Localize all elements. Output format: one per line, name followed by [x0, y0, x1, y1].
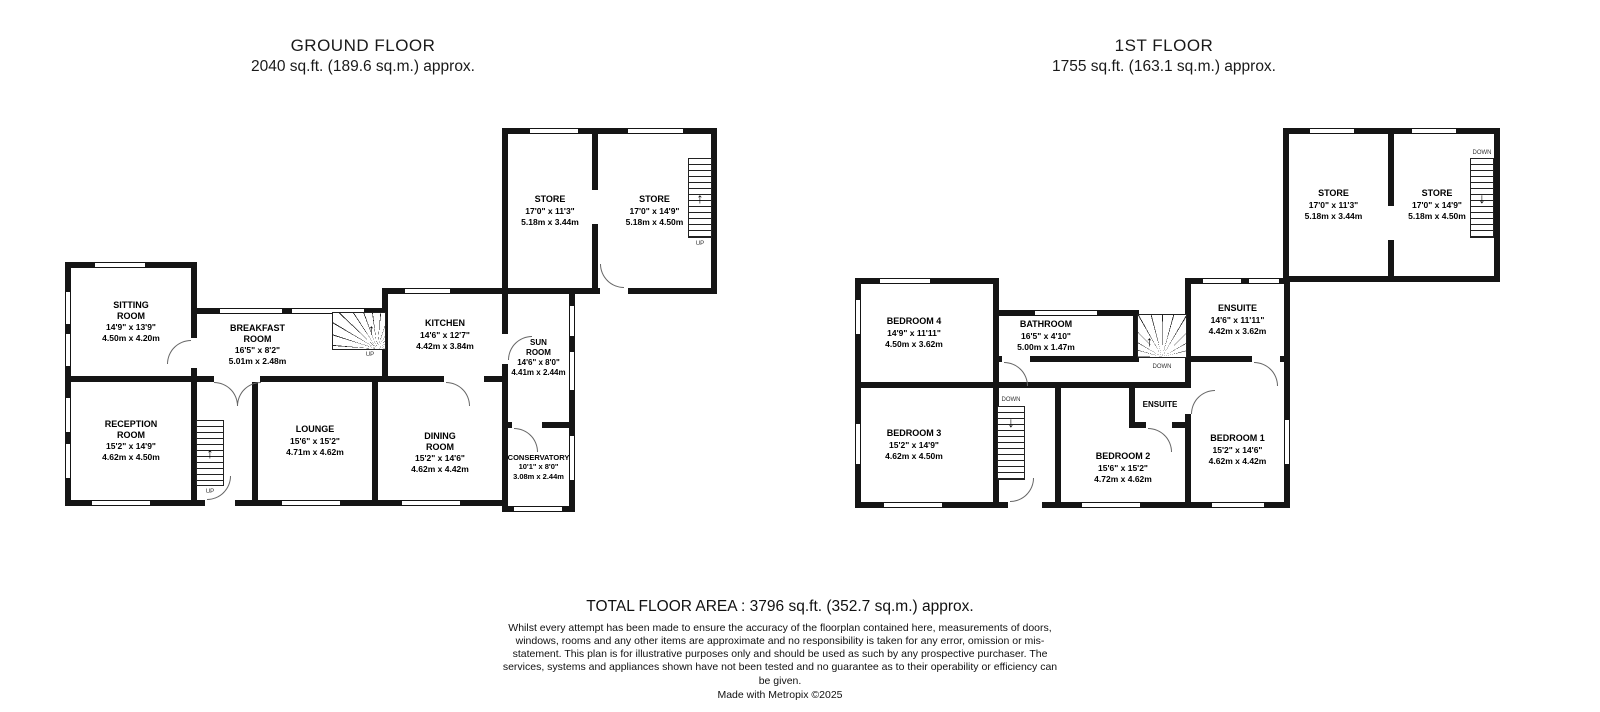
- window-marker: [92, 500, 150, 506]
- room-label: KITCHEN 14'6" x 12'7" 4.42m x 3.84m: [416, 318, 474, 351]
- room-bedroom-3: BEDROOM 3 15'2" x 14'9" 4.62m x 4.50m: [855, 382, 999, 508]
- floorplan-page: GROUND FLOOR 2040 sq.ft. (189.6 sq.m.) a…: [0, 0, 1600, 712]
- window-marker: [1284, 420, 1290, 464]
- up-arrow-icon: ↑: [207, 446, 214, 460]
- room-dims-m: 5.00m x 1.47m: [1017, 342, 1075, 353]
- window-marker: [1310, 128, 1354, 134]
- door-opening: [191, 338, 197, 368]
- floor-area-text: 2040 sq.ft. (189.6 sq.m.) approx.: [103, 58, 623, 76]
- window-marker: [569, 352, 575, 390]
- room-dims-ft: 17'0" x 14'9": [626, 206, 684, 217]
- window-marker: [1249, 278, 1279, 284]
- door-opening: [600, 288, 628, 294]
- room-dims-ft: 17'0" x 14'9": [1408, 200, 1466, 211]
- room-label: ENSUITE 14'6" x 11'11" 4.42m x 3.62m: [1209, 303, 1267, 336]
- window-marker: [1082, 502, 1140, 508]
- room-dims-ft: 17'0" x 11'3": [521, 206, 579, 217]
- window-marker: [282, 500, 340, 506]
- room-name: BREAKFAST ROOM: [229, 323, 287, 346]
- door-opening: [1252, 356, 1280, 362]
- door-opening: [1185, 388, 1191, 414]
- room-dims-ft: 14'9" x 13'9": [102, 322, 160, 333]
- window-marker: [220, 308, 282, 314]
- room-label: STORE 17'0" x 11'3" 5.18m x 3.44m: [521, 194, 579, 227]
- room-dims-ft: 14'6" x 12'7": [416, 330, 474, 341]
- room-dims-m: 5.01m x 2.48m: [229, 356, 287, 367]
- room-bathroom: BATHROOM 16'5" x 4'10" 5.00m x 1.47m: [993, 310, 1139, 362]
- window-marker: [628, 128, 683, 134]
- room-name: DINING ROOM: [411, 431, 469, 454]
- room-label: ENSUITE: [1143, 400, 1178, 410]
- room-dims-ft: 15'6" x 15'2": [1094, 463, 1152, 474]
- staircase-winder-ff: [1137, 314, 1187, 358]
- room-dims-ft: 17'0" x 11'3": [1305, 200, 1363, 211]
- floor-title-text: 1ST FLOOR: [904, 36, 1424, 56]
- room-dims-m: 4.72m x 4.62m: [1094, 474, 1152, 485]
- room-dims-m: 5.18m x 3.44m: [521, 217, 579, 228]
- window-marker: [884, 502, 942, 508]
- room-label: BATHROOM 16'5" x 4'10" 5.00m x 1.47m: [1017, 319, 1115, 352]
- up-arrow-icon: ↑: [1146, 334, 1153, 348]
- room-dims-ft: 15'6" x 15'2": [286, 436, 344, 447]
- window-marker: [402, 500, 460, 506]
- door-opening: [592, 190, 598, 224]
- room-name: CONSERVATORY: [508, 453, 570, 462]
- room-lounge: LOUNGE 15'6" x 15'2" 4.71m x 4.62m: [252, 376, 378, 506]
- room-dims-m: 5.18m x 3.44m: [1305, 211, 1363, 222]
- room-name: BEDROOM 2: [1094, 451, 1152, 462]
- window-marker: [65, 398, 71, 432]
- stair-direction-label: DOWN: [1458, 150, 1506, 156]
- room-name: STORE: [1408, 188, 1466, 199]
- room-dims-ft: 15'2" x 14'9": [885, 440, 943, 451]
- room-dims-m: 4.62m x 4.50m: [102, 452, 160, 463]
- stair-direction-label: DOWN: [987, 397, 1035, 403]
- window-marker: [405, 288, 450, 294]
- room-dims-ft: 14'9" x 11'11": [885, 328, 943, 339]
- room-name: BEDROOM 3: [885, 428, 943, 439]
- room-dims-m: 4.42m x 3.62m: [1209, 326, 1267, 337]
- room-dims-ft: 15'2" x 14'6": [411, 453, 469, 464]
- room-label: RECEPTION ROOM 15'2" x 14'9" 4.62m x 4.5…: [102, 419, 160, 464]
- door-opening: [1388, 206, 1394, 240]
- room-label: BEDROOM 3 15'2" x 14'9" 4.62m x 4.50m: [885, 428, 969, 461]
- staircase-store-gf: ↑: [688, 158, 712, 238]
- room-name: SITTING ROOM: [102, 300, 160, 323]
- room-dims-m: 4.62m x 4.50m: [885, 451, 943, 462]
- room-dims-m: 4.62m x 4.42m: [411, 464, 469, 475]
- room-dims-ft: 14'6" x 11'11": [1209, 315, 1267, 326]
- disclaimer-text: Whilst every attempt has been made to en…: [500, 622, 1060, 688]
- room-label: SITTING ROOM 14'9" x 13'9" 4.50m x 4.20m: [102, 300, 160, 345]
- door-opening: [512, 422, 542, 428]
- metropix-credit: Made with Metropix ©2025: [400, 689, 1160, 701]
- total-floor-area: TOTAL FLOOR AREA : 3796 sq.ft. (352.7 sq…: [400, 598, 1160, 616]
- room-dims-m: 5.18m x 4.50m: [1408, 211, 1466, 222]
- window-marker: [855, 300, 861, 334]
- door-opening: [1008, 502, 1042, 508]
- room-dims-ft: 16'5" x 4'10": [1017, 331, 1075, 342]
- room-label: STORE 17'0" x 11'3" 5.18m x 3.44m: [1305, 188, 1373, 221]
- room-name: ENSUITE: [1209, 303, 1267, 314]
- room-dims-ft: 15'2" x 14'9": [102, 441, 160, 452]
- room-dims-ft: 16'5" x 8'2": [229, 345, 287, 356]
- window-marker: [880, 278, 930, 284]
- window-marker: [1035, 310, 1097, 316]
- staircase-winder-gf: [332, 312, 386, 350]
- room-dims-ft: 15'2" x 14'6": [1209, 445, 1267, 456]
- stair-direction-label: UP: [358, 352, 382, 358]
- room-name: BATHROOM: [1017, 319, 1075, 330]
- window-marker: [569, 306, 575, 336]
- window-marker: [1412, 128, 1456, 134]
- room-dims-m: 5.18m x 4.50m: [626, 217, 684, 228]
- ground-floor-title: GROUND FLOOR 2040 sq.ft. (189.6 sq.m.) a…: [103, 36, 623, 76]
- window-marker: [1212, 502, 1264, 508]
- room-store-1-ff: STORE 17'0" x 11'3" 5.18m x 3.44m: [1283, 128, 1394, 282]
- room-dims-m: 4.41m x 2.44m: [511, 368, 565, 378]
- room-name: STORE: [1305, 188, 1363, 199]
- window-marker: [514, 506, 562, 512]
- room-sitting-room: SITTING ROOM 14'9" x 13'9" 4.50m x 4.20m: [65, 262, 197, 382]
- window-marker: [855, 424, 861, 464]
- room-dims-m: 4.50m x 4.20m: [102, 333, 160, 344]
- room-dims-ft: 10'1" x 8'0": [508, 462, 570, 472]
- room-dining-room: DINING ROOM 15'2" x 14'6" 4.62m x 4.42m: [372, 376, 508, 506]
- room-name: STORE: [626, 194, 684, 205]
- first-floor-title: 1ST FLOOR 1755 sq.ft. (163.1 sq.m.) appr…: [904, 36, 1424, 76]
- room-kitchen: KITCHEN 14'6" x 12'7" 4.42m x 3.84m: [382, 288, 508, 382]
- stair-direction-label: DOWN: [1137, 364, 1187, 370]
- room-label: STORE 17'0" x 14'9" 5.18m x 4.50m: [626, 194, 684, 227]
- room-ensuite-main: ENSUITE 14'6" x 11'11" 4.42m x 3.62m: [1185, 278, 1290, 362]
- up-arrow-icon: ↑: [697, 191, 704, 205]
- stair-direction-label: UP: [196, 489, 224, 495]
- room-label: DINING ROOM 15'2" x 14'6" 4.62m x 4.42m: [411, 431, 469, 476]
- room-bedroom-4: BEDROOM 4 14'9" x 11'11" 4.50m x 3.62m: [855, 278, 999, 388]
- footer: TOTAL FLOOR AREA : 3796 sq.ft. (352.7 sq…: [400, 598, 1160, 701]
- door-opening: [205, 500, 235, 506]
- stair-direction-label: UP: [688, 241, 712, 247]
- room-name: BEDROOM 1: [1209, 433, 1267, 444]
- room-dims-m: 3.08m x 2.44m: [508, 472, 570, 482]
- room-dims-m: 4.71m x 4.62m: [286, 447, 344, 458]
- up-arrow-icon: ↑: [368, 322, 375, 336]
- room-label: BEDROOM 4 14'9" x 11'11" 4.50m x 3.62m: [885, 316, 969, 349]
- room-store-1-gf: STORE 17'0" x 11'3" 5.18m x 3.44m: [502, 128, 598, 294]
- floor-area-text: 1755 sq.ft. (163.1 sq.m.) approx.: [904, 58, 1424, 76]
- staircase-store-ff: ↓: [1470, 158, 1494, 238]
- room-reception-room: RECEPTION ROOM 15'2" x 14'9" 4.62m x 4.5…: [65, 376, 197, 506]
- window-marker: [65, 444, 71, 478]
- window-marker: [530, 128, 578, 134]
- door-opening: [444, 376, 484, 382]
- room-label: BEDROOM 2 15'6" x 15'2" 4.72m x 4.62m: [1094, 451, 1152, 484]
- staircase-hall-ff: ↓: [997, 406, 1025, 480]
- room-label: LOUNGE 15'6" x 15'2" 4.71m x 4.62m: [286, 424, 344, 457]
- window-marker: [65, 292, 71, 324]
- room-name: ENSUITE: [1143, 400, 1178, 410]
- down-arrow-icon: ↓: [1008, 415, 1015, 429]
- room-name: LOUNGE: [286, 424, 344, 435]
- window-marker: [569, 436, 575, 480]
- room-dims-m: 4.42m x 3.84m: [416, 341, 474, 352]
- room-label: CONSERVATORY 10'1" x 8'0" 3.08m x 2.44m: [508, 453, 570, 482]
- window-marker: [1203, 278, 1241, 284]
- window-marker: [95, 262, 145, 268]
- door-swing: [1004, 362, 1028, 386]
- room-name: KITCHEN: [416, 318, 474, 329]
- staircase-hall-gf: ↑: [196, 420, 224, 486]
- door-opening: [1002, 356, 1030, 362]
- room-name: BEDROOM 4: [885, 316, 943, 327]
- room-dims-m: 4.50m x 3.62m: [885, 339, 943, 350]
- room-label: BEDROOM 1 15'2" x 14'6" 4.62m x 4.42m: [1209, 433, 1267, 466]
- room-name: STORE: [521, 194, 579, 205]
- room-conservatory: CONSERVATORY 10'1" x 8'0" 3.08m x 2.44m: [502, 422, 575, 512]
- door-opening: [214, 376, 260, 382]
- room-dims-m: 4.62m x 4.42m: [1209, 456, 1267, 467]
- window-marker: [65, 334, 71, 366]
- floor-title-text: GROUND FLOOR: [103, 36, 623, 56]
- room-name: RECEPTION ROOM: [102, 419, 160, 442]
- down-arrow-icon: ↓: [1479, 191, 1486, 205]
